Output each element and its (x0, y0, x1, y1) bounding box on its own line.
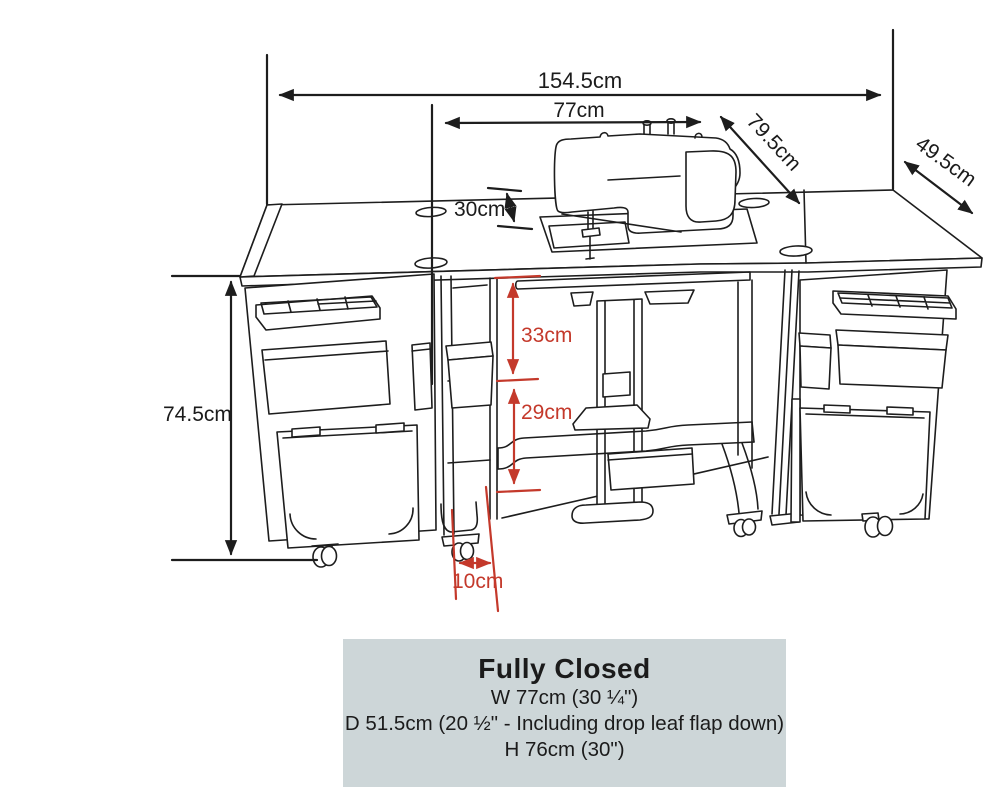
dim-label-machine-height: 30cm (454, 198, 505, 221)
left-cabinet (245, 274, 436, 567)
info-box-width-line: W 77cm (30 ¼") (343, 685, 786, 711)
caster-wheel (461, 543, 474, 560)
dim-label-leaf-depth: 49.5cm (911, 132, 980, 191)
storage-bin (838, 345, 946, 388)
dimension-lines-red: 33cm 29cm 10cm (452, 276, 572, 611)
dim-label-upper-clearance: 33cm (521, 324, 572, 347)
dim-label-cabinet-height: 74.5cm (163, 403, 232, 426)
platform-bracket (571, 292, 593, 306)
flap-tab (824, 405, 850, 413)
flap-tab (887, 407, 913, 415)
info-box-height-line: H 76cm (30") (343, 737, 786, 763)
flap-tab (292, 427, 320, 437)
dim-label-opening-width: 77cm (553, 99, 604, 122)
right-inner-wall (738, 280, 752, 468)
lift-latch (603, 372, 630, 397)
flap-bracket (791, 399, 800, 522)
door-foot (441, 502, 477, 532)
info-box-depth-line: D 51.5cm (20 ½" - Including drop leaf fl… (343, 711, 786, 737)
caster-wheel (322, 547, 337, 566)
opening-width-arrow (446, 122, 700, 123)
flywheel-cover (686, 151, 736, 222)
left-door (441, 276, 493, 561)
flap-tab (376, 423, 404, 433)
info-box-title: Fully Closed (343, 653, 786, 685)
storage-flap (277, 425, 419, 548)
dim-label-caster-inset: 10cm (452, 570, 503, 593)
info-box: Fully Closed W 77cm (30 ¼") D 51.5cm (20… (343, 639, 786, 787)
dim-label-lower-clearance: 29cm (521, 401, 572, 424)
lift-base (572, 502, 653, 523)
caster-wheel (743, 519, 756, 535)
center-opening (448, 272, 768, 537)
storage-flap (800, 408, 930, 521)
lift-bracket (573, 405, 650, 430)
small-bin (800, 346, 831, 389)
dim-label-depth: 79.5cm (742, 110, 806, 176)
sewing-cabinet-dimension-diagram: 154.5cm 77cm 79.5cm 49.5cm 30cm 74.5cm 3… (0, 0, 1000, 801)
accessory-cup (412, 343, 432, 410)
presser-foot (582, 228, 600, 237)
dim-label-total-width: 154.5cm (538, 68, 622, 93)
door-bin (448, 356, 493, 408)
platform-bracket (645, 290, 694, 304)
caster-wheel (878, 517, 893, 536)
right-cabinet (791, 270, 956, 537)
